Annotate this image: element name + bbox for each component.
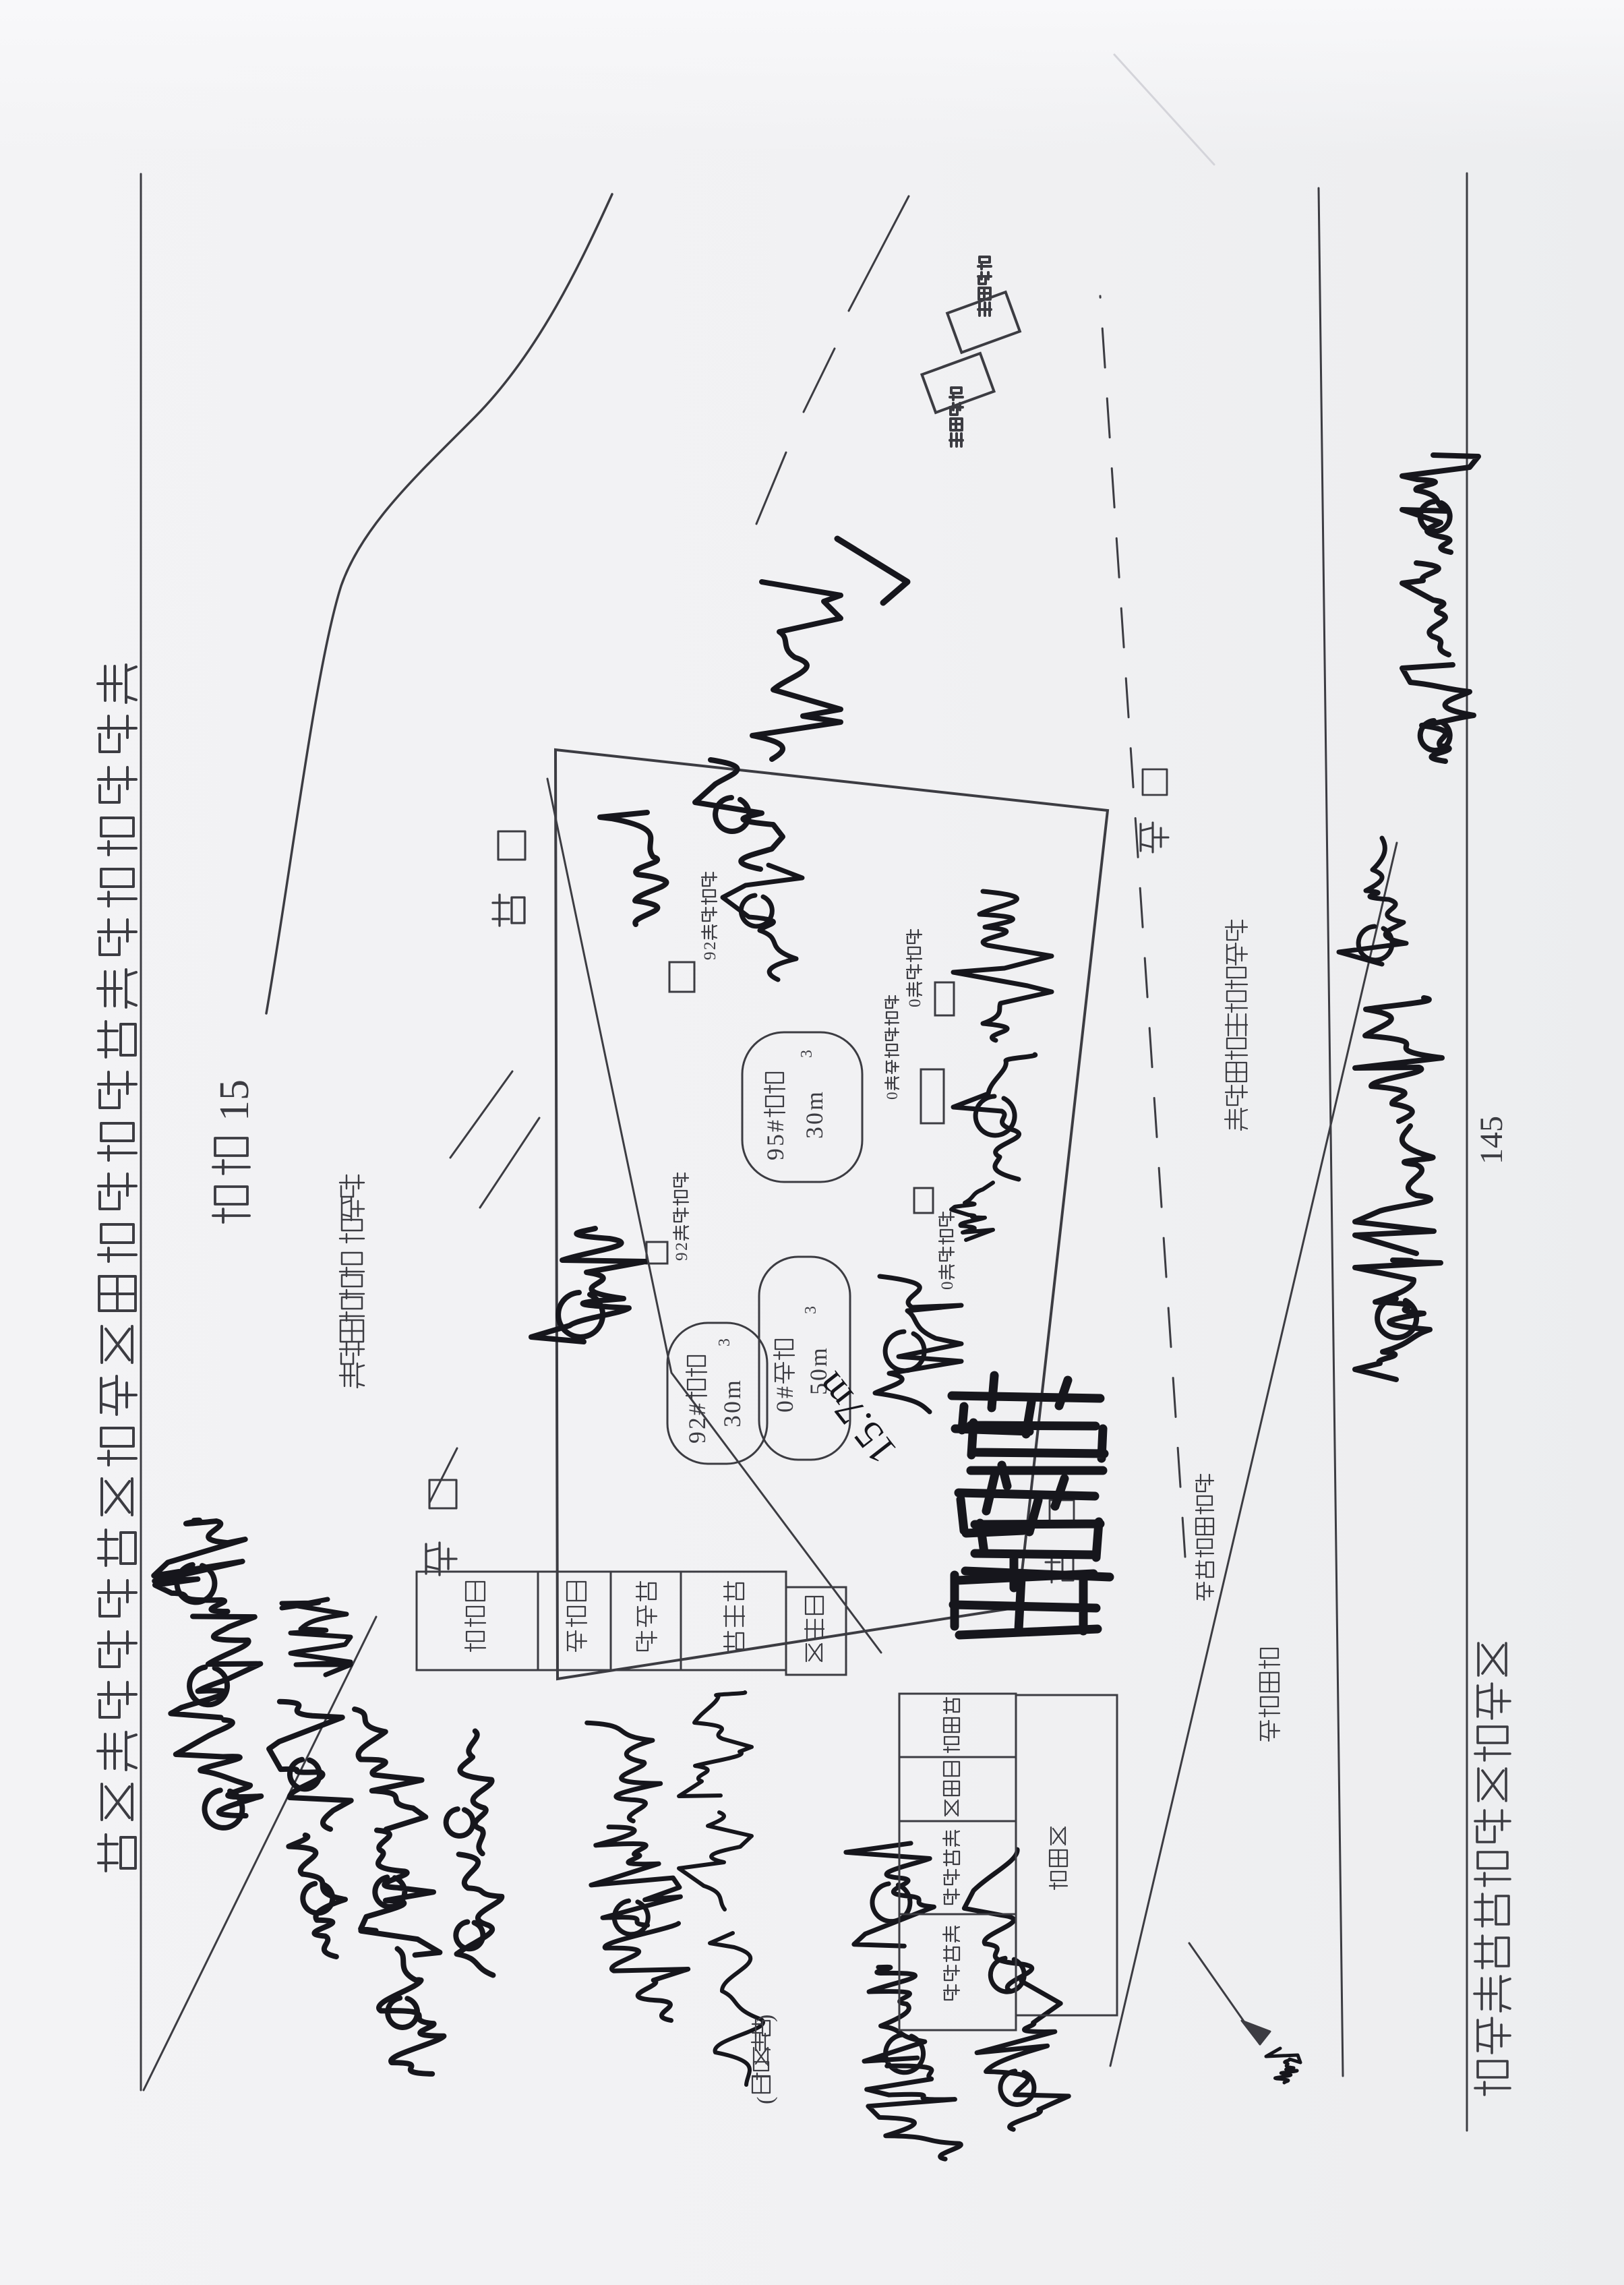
svg-text:0: 0 xyxy=(719,1401,746,1413)
svg-text:0: 0 xyxy=(906,999,924,1007)
svg-text:#: # xyxy=(771,1386,798,1398)
svg-text:9: 9 xyxy=(701,951,719,960)
svg-text:0: 0 xyxy=(801,1112,828,1125)
svg-text:#: # xyxy=(684,1403,711,1415)
svg-text:m: m xyxy=(805,1348,832,1367)
svg-text:0: 0 xyxy=(938,1281,957,1290)
svg-text:3: 3 xyxy=(798,1050,816,1058)
svg-text:9: 9 xyxy=(762,1148,789,1160)
svg-text:9: 9 xyxy=(673,1252,691,1261)
svg-text:145: 145 xyxy=(1474,1116,1509,1164)
svg-text:0: 0 xyxy=(883,1092,901,1100)
svg-text:3: 3 xyxy=(716,1338,733,1346)
svg-text:3: 3 xyxy=(802,1306,820,1314)
svg-text:15: 15 xyxy=(212,1079,258,1121)
svg-text:#: # xyxy=(762,1120,789,1132)
svg-text:m: m xyxy=(719,1380,746,1399)
svg-text:2: 2 xyxy=(701,941,719,950)
svg-text:3: 3 xyxy=(801,1127,828,1139)
svg-text:(: ( xyxy=(753,2097,778,2104)
svg-text:9: 9 xyxy=(684,1431,711,1444)
svg-text:2: 2 xyxy=(673,1242,691,1251)
svg-text:): ) xyxy=(753,2015,778,2022)
svg-text:0: 0 xyxy=(771,1400,798,1413)
svg-text:5: 5 xyxy=(762,1134,789,1146)
svg-text:3: 3 xyxy=(719,1415,746,1427)
svg-text:m: m xyxy=(801,1092,828,1110)
